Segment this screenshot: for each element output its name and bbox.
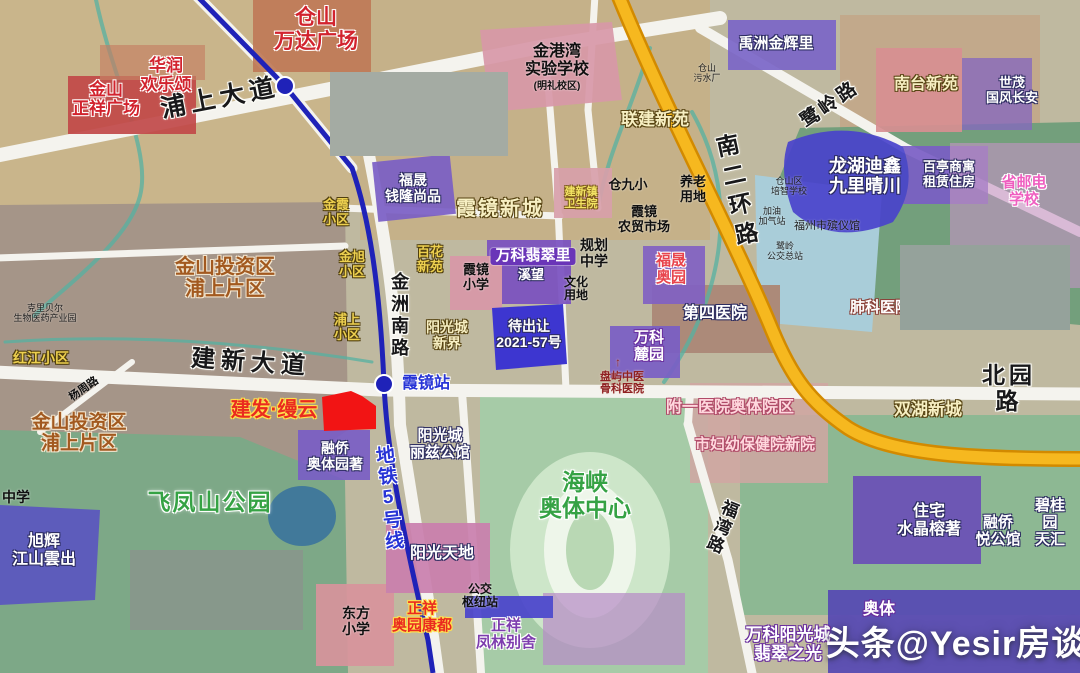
map-canvas[interactable]: 浦上大道建新大道北园路鹭岭路南二环路金洲南路福湾路杨周路地铁5号线霞镜站仓山 万… xyxy=(0,0,1080,673)
xiajing-station-dot xyxy=(375,375,393,393)
censored-block-bottom-left xyxy=(130,550,303,630)
censored-block-top xyxy=(330,72,508,156)
auction-parcel-2021-57 xyxy=(492,304,567,370)
censored-block-right xyxy=(900,245,1070,330)
pushang-avenue-station-dot xyxy=(276,77,294,95)
watermark: 头条@Yesir房谈 xyxy=(826,616,1080,665)
